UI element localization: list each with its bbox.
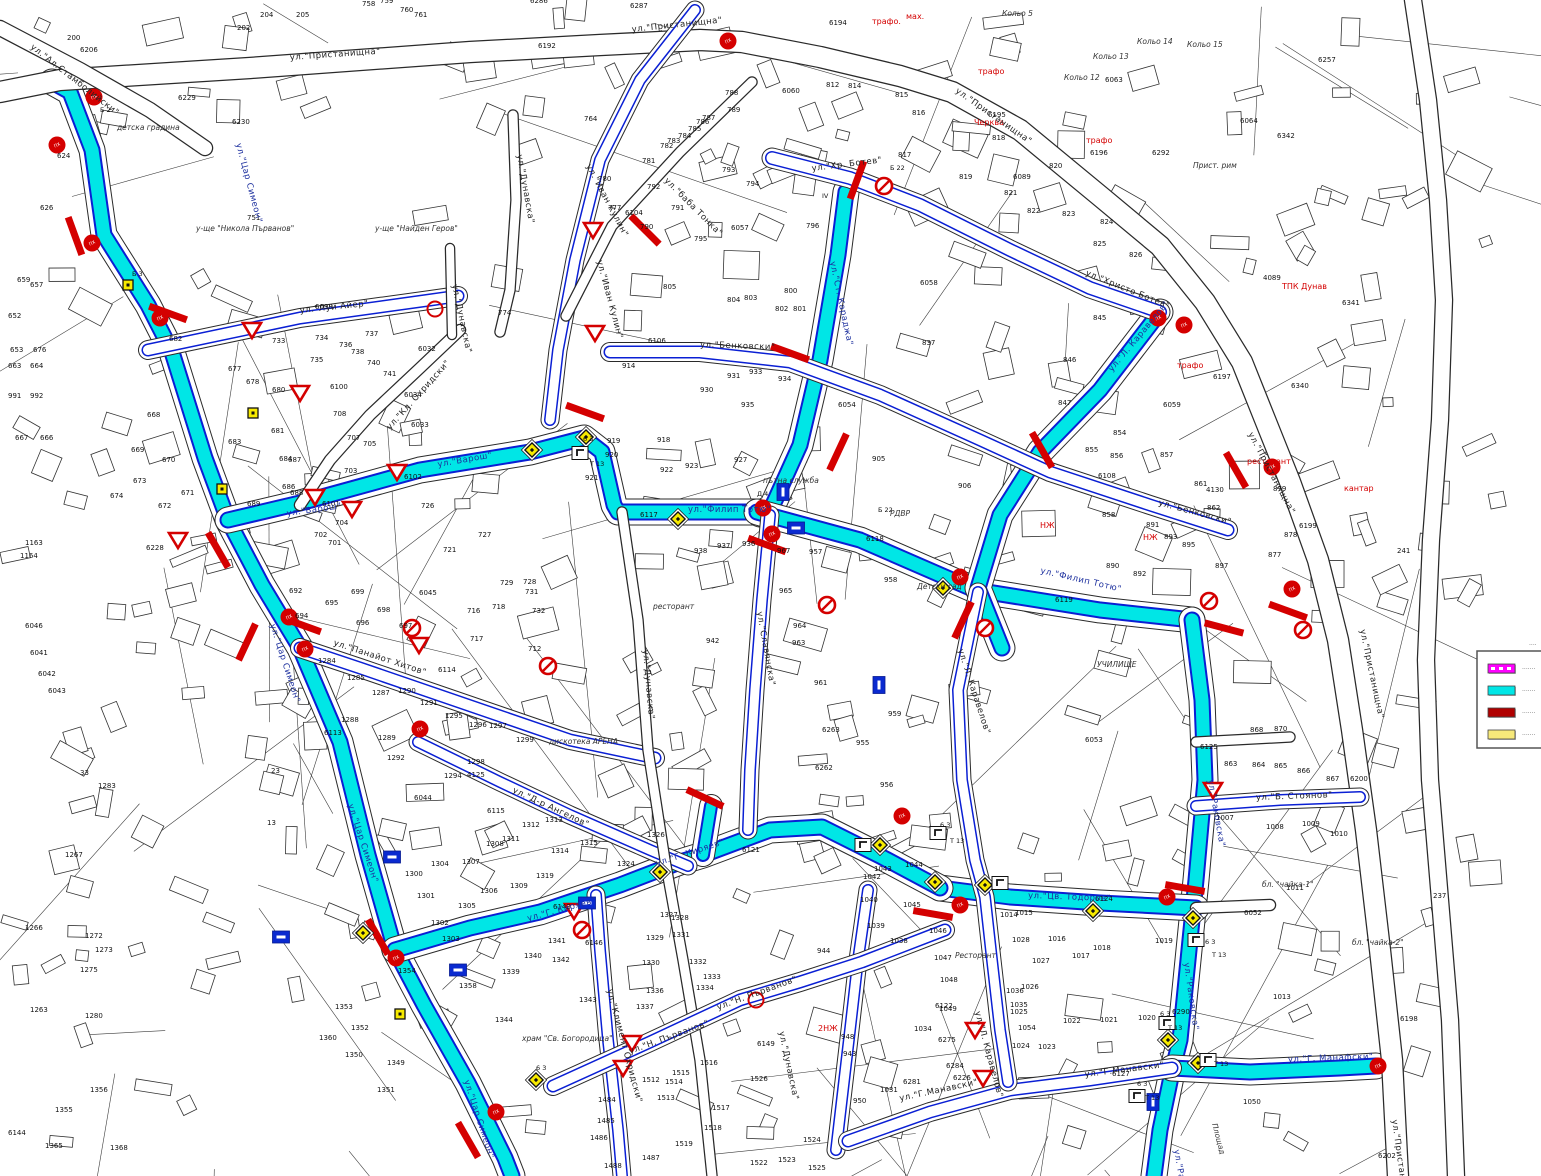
info-sign-icon bbox=[384, 851, 401, 863]
parcel-number: 965 bbox=[779, 587, 792, 595]
parcel-number: 1525 bbox=[808, 1164, 826, 1172]
parcel-number: 788 bbox=[725, 89, 738, 97]
parcel-number: 678 bbox=[246, 378, 259, 386]
parcel-number: 804 bbox=[727, 296, 741, 304]
parcel-number: 956 bbox=[880, 781, 894, 789]
parcel-number: 1292 bbox=[387, 754, 405, 762]
parcel-number: 1285 bbox=[347, 674, 365, 682]
parcel-number: 796 bbox=[806, 222, 820, 230]
parcel-number: 205 bbox=[296, 11, 309, 19]
building bbox=[697, 561, 728, 590]
parcel-number: 1039 bbox=[867, 922, 885, 930]
hydrant-icon: ПХ bbox=[84, 235, 101, 252]
hydrant-icon: ПХ bbox=[152, 310, 169, 327]
building bbox=[999, 213, 1019, 233]
parcel-number: 1329 bbox=[646, 934, 664, 942]
parcel-number: 782 bbox=[660, 142, 673, 150]
legend-item-label: ······· bbox=[1522, 710, 1535, 717]
building bbox=[846, 796, 864, 807]
parcel-number: 23 bbox=[271, 767, 280, 775]
parcel-number: 991 bbox=[8, 392, 21, 400]
annotation: Б 3 bbox=[132, 270, 143, 278]
parcel-number: 698 bbox=[377, 606, 390, 614]
poi-label: Кольо 15 bbox=[1187, 40, 1223, 49]
parcel-number: 958 bbox=[884, 576, 897, 584]
parcel-number: 1287 bbox=[372, 689, 390, 697]
parcel-number: 670 bbox=[162, 456, 175, 464]
parcel-number: 1519 bbox=[675, 1140, 693, 1148]
parcel-number: 4089 bbox=[1263, 274, 1281, 282]
annotation: 6 3 bbox=[1160, 1010, 1170, 1018]
parcel-number: 6262 bbox=[815, 764, 833, 772]
parcel-number: 702 bbox=[314, 531, 327, 539]
parcel-number: 822 bbox=[1027, 207, 1040, 215]
parcel-number: 6104 bbox=[625, 209, 643, 217]
parcel-number: 1307 bbox=[462, 858, 480, 866]
parcel-number: 1010 bbox=[1330, 830, 1348, 838]
parcel-number: 6206 bbox=[80, 46, 98, 54]
parcel-number: 1040 bbox=[860, 896, 878, 904]
parcel-number: 1328 bbox=[671, 914, 689, 922]
parcel-number: 626 bbox=[40, 204, 54, 212]
parcel-number: 760 bbox=[400, 6, 413, 14]
parcel-number: 938 bbox=[694, 547, 707, 555]
parcel-number: 687 bbox=[288, 456, 301, 464]
parcel-number: 6202 bbox=[1378, 1152, 1396, 1160]
parcel-number: 819 bbox=[959, 173, 972, 181]
parcel-number: 6108 bbox=[1098, 472, 1116, 480]
parcel-number: 695 bbox=[325, 599, 338, 607]
building bbox=[693, 668, 715, 689]
annotation: 6 3 bbox=[1205, 938, 1215, 946]
parcel-number: 890 bbox=[1106, 562, 1119, 570]
parcel-number: 6041 bbox=[30, 649, 48, 657]
parcel-number: 6045 bbox=[419, 589, 437, 597]
parcel-number: 1365 bbox=[45, 1142, 63, 1150]
annotation: IV bbox=[822, 192, 829, 200]
building bbox=[635, 554, 663, 569]
parcel-number: 6106 bbox=[648, 337, 666, 345]
parcel-number: 1288 bbox=[341, 716, 359, 724]
no-stopping-icon bbox=[540, 658, 556, 674]
street-label: ул."Филип Тотю" bbox=[688, 505, 771, 515]
parcel-number: 959 bbox=[888, 710, 901, 718]
building bbox=[136, 642, 156, 654]
building bbox=[1383, 398, 1393, 407]
parcel-number: 825 bbox=[1093, 240, 1106, 248]
hydrant-icon: ПХ bbox=[894, 808, 911, 825]
parcel-number: 1034 bbox=[914, 1025, 932, 1033]
parcel-number: 784 bbox=[678, 132, 692, 140]
parcel-number: 718 bbox=[492, 603, 505, 611]
building bbox=[747, 1126, 774, 1139]
building bbox=[455, 499, 470, 509]
parcel-number: 1486 bbox=[590, 1134, 608, 1142]
parcel-number: 6118 bbox=[866, 535, 884, 543]
parcel-number: 1027 bbox=[1032, 957, 1050, 965]
hydrant-icon: ПХ bbox=[49, 137, 66, 154]
parcel-number: 1523 bbox=[778, 1156, 796, 1164]
parcel-number: 6125 bbox=[1200, 743, 1218, 751]
parcel-number: 857 bbox=[1160, 451, 1173, 459]
parcel-number: 895 bbox=[1182, 541, 1195, 549]
parcel-number: 1016 bbox=[1048, 935, 1066, 943]
parcel-number: 1518 bbox=[704, 1124, 722, 1132]
parcel-number: 937 bbox=[717, 542, 730, 550]
parcel-number: 1018 bbox=[1093, 944, 1111, 952]
parcel-number: 1275 bbox=[80, 966, 98, 974]
parcel-number: 1020 bbox=[1138, 1014, 1156, 1022]
building bbox=[285, 826, 297, 854]
parcel-number: 761 bbox=[414, 11, 427, 19]
parcel-number: 1045 bbox=[903, 901, 921, 909]
street-plain bbox=[1196, 737, 1290, 742]
parcel-number: 817 bbox=[898, 151, 911, 159]
parcel-number: 1054 bbox=[1018, 1024, 1036, 1032]
parcel-number: 6043 bbox=[48, 687, 66, 695]
parcel-number: 6286 bbox=[530, 0, 548, 5]
annotation: Т 13 bbox=[1213, 1060, 1228, 1068]
parcel-number: 1050 bbox=[1243, 1098, 1261, 1106]
parcel-number: 866 bbox=[1297, 767, 1311, 775]
parcel-number: 1023 bbox=[1038, 1043, 1056, 1051]
parcel-number: 738 bbox=[351, 348, 364, 356]
parcel-number: 200 bbox=[67, 34, 80, 42]
parcel-number: 729 bbox=[500, 579, 513, 587]
hydrant-box-icon bbox=[1188, 934, 1204, 947]
parcel-number: 1025 bbox=[1010, 1008, 1028, 1016]
parcel-number: 1298 bbox=[467, 758, 485, 766]
parcel-number: 6197 bbox=[1213, 373, 1231, 381]
parcel-number: 1344 bbox=[495, 1016, 513, 1024]
parcel-number: 6060 bbox=[782, 87, 800, 95]
building bbox=[1152, 568, 1191, 595]
parcel-number: 696 bbox=[356, 619, 370, 627]
parcel-number: 1341 bbox=[548, 937, 566, 945]
parcel-number: 1517 bbox=[712, 1104, 730, 1112]
parcel-number: 6113 bbox=[324, 729, 342, 737]
parcel-number: 1350 bbox=[345, 1051, 363, 1059]
parcel-number: 1289 bbox=[378, 734, 396, 742]
parcel-number: 950 bbox=[853, 1097, 866, 1105]
parcel-number: 764 bbox=[584, 115, 598, 123]
building bbox=[107, 603, 126, 620]
poi-label: Детски сад bbox=[916, 582, 962, 591]
parcel-number: 854 bbox=[1113, 429, 1127, 437]
parcel-number: 846 bbox=[1063, 356, 1077, 364]
building bbox=[1488, 491, 1506, 509]
parcel-number: 801 bbox=[793, 305, 806, 313]
parcel-number: 1343 bbox=[579, 996, 597, 1004]
no-stopping-icon bbox=[819, 597, 835, 613]
poi-label: Ресторант bbox=[955, 951, 996, 960]
parcel-number: 737 bbox=[365, 330, 378, 338]
parcel-number: 1049 bbox=[939, 1005, 957, 1013]
parcel-number: 728 bbox=[523, 578, 536, 586]
red-label: трафо bbox=[1177, 361, 1203, 370]
parcel-number: 1024 bbox=[1012, 1042, 1030, 1050]
valve-square-icon bbox=[123, 280, 133, 290]
parcel-number: 726 bbox=[421, 502, 435, 510]
parcel-number: 707 bbox=[347, 434, 360, 442]
parcel-number: 699 bbox=[351, 588, 364, 596]
poi-label: у-ще "Найден Геров" bbox=[374, 224, 458, 233]
parcel-number: 863 bbox=[1224, 760, 1237, 768]
parcel-number: 1266 bbox=[25, 924, 43, 932]
parcel-number: 704 bbox=[335, 519, 349, 527]
parcel-number: 657 bbox=[30, 281, 43, 289]
red-label: трафо. bbox=[872, 17, 901, 26]
red-label: ТПК Дунав bbox=[1281, 282, 1327, 291]
parcel-number: 1284 bbox=[318, 657, 336, 665]
no-stopping-icon bbox=[1201, 593, 1217, 609]
parcel-number: 1028 bbox=[1012, 936, 1030, 944]
parcel-number: 6117 bbox=[640, 511, 658, 519]
building bbox=[983, 348, 1014, 380]
no-stopping-icon bbox=[876, 178, 892, 194]
parcel-number: 6228 bbox=[146, 544, 164, 552]
parcel-number: 6032 bbox=[418, 345, 436, 353]
parcel-number: 712 bbox=[528, 645, 541, 653]
parcel-number: 6059 bbox=[1163, 401, 1181, 409]
parcel-number: 1304 bbox=[431, 860, 449, 868]
parcel-number: 868 bbox=[1250, 726, 1263, 734]
annotation: Т 13 bbox=[1211, 951, 1226, 959]
parcel-number: 6290 bbox=[1172, 1008, 1190, 1016]
parcel-number: 1515 bbox=[672, 1069, 690, 1077]
parcel-number: 652 bbox=[8, 312, 21, 320]
parcel-number: 1272 bbox=[85, 932, 103, 940]
poi-label: РДВР bbox=[890, 509, 911, 518]
building bbox=[1321, 931, 1339, 951]
hydrant-icon: ПХ bbox=[297, 641, 314, 658]
parcel-number: 927 bbox=[734, 456, 747, 464]
parcel-number: 6102 bbox=[404, 473, 422, 481]
parcel-number: 1302 bbox=[431, 919, 449, 927]
parcel-number: 6089 bbox=[1013, 173, 1031, 181]
building bbox=[75, 950, 89, 962]
parcel-number: 905 bbox=[872, 455, 885, 463]
parcel-number: 1043 bbox=[874, 865, 892, 873]
parcel-number: 6144 bbox=[8, 1129, 26, 1137]
parcel-number: 694 bbox=[295, 612, 309, 620]
parcel-number: 4125 bbox=[467, 771, 485, 779]
parcel-number: 1047 bbox=[934, 954, 952, 962]
poi-label: ресторант bbox=[652, 602, 695, 611]
poi-label: у-ще "Никола Първанов" bbox=[195, 224, 294, 233]
parcel-number: 6115 bbox=[487, 807, 505, 815]
parcel-number: 6229 bbox=[178, 94, 196, 102]
parcel-number: 847 bbox=[1058, 399, 1071, 407]
parcel-number: 6053 bbox=[1085, 736, 1103, 744]
parcel-number: 802 bbox=[775, 305, 788, 313]
parcel-number: 6149 bbox=[757, 1040, 775, 1048]
parcel-number: 6230 bbox=[232, 118, 250, 126]
parcel-number: 789 bbox=[727, 106, 740, 114]
building bbox=[646, 448, 681, 460]
parcel-number: 716 bbox=[467, 607, 481, 615]
parcel-number: 6042 bbox=[38, 670, 56, 678]
parcel-number: 1356 bbox=[90, 1086, 108, 1094]
parcel-number: 1267 bbox=[65, 851, 83, 859]
info-sign-icon bbox=[788, 522, 805, 534]
parcel-number: 13 bbox=[267, 819, 276, 827]
parcel-number: 1008 bbox=[1266, 823, 1284, 831]
parcel-number: 6046 bbox=[25, 622, 43, 630]
building bbox=[1211, 236, 1250, 250]
building bbox=[1263, 1113, 1280, 1129]
parcel-number: 814 bbox=[848, 82, 862, 90]
parcel-number: 1334 bbox=[696, 984, 714, 992]
parcel-number: 727 bbox=[478, 531, 491, 539]
parcel-number: 943 bbox=[843, 1050, 856, 1058]
parcel-number: 1340 bbox=[524, 952, 542, 960]
parcel-number: 664 bbox=[30, 362, 44, 370]
hydrant-icon: ПХ bbox=[1284, 581, 1301, 598]
parcel-number: 934 bbox=[778, 375, 792, 383]
parcel-number: 906 bbox=[958, 482, 972, 490]
parcel-number: 816 bbox=[912, 109, 926, 117]
building bbox=[525, 1120, 546, 1135]
poi-label: детска градина bbox=[116, 123, 180, 132]
parcel-number: 1048 bbox=[940, 976, 958, 984]
parcel-number: 673 bbox=[133, 477, 146, 485]
parcel-number: 6341 bbox=[1342, 299, 1360, 307]
building bbox=[1341, 18, 1360, 47]
parcel-number: 6058 bbox=[920, 279, 938, 287]
parcel-number: 1015 bbox=[1015, 909, 1033, 917]
parcel-number: 791 bbox=[671, 204, 684, 212]
parcel-number: 6064 bbox=[1240, 117, 1258, 125]
parcel-number: 897 bbox=[1215, 562, 1228, 570]
parcel-number: 1354 bbox=[398, 967, 416, 975]
annotation: Т 13 bbox=[1144, 1094, 1159, 1102]
building bbox=[1045, 873, 1062, 881]
parcel-number: 6100 bbox=[330, 383, 348, 391]
parcel-number: 6275 bbox=[938, 1036, 956, 1044]
city-map[interactable]: ПХПХПХПХПХПХПХПХПХПХПХПХПХПХПХПХПХПХПХПХ… bbox=[0, 0, 1541, 1176]
parcel-number: 1017 bbox=[1072, 952, 1090, 960]
building bbox=[668, 768, 704, 790]
parcel-number: 1514 bbox=[665, 1078, 683, 1086]
parcel-number: 1351 bbox=[377, 1086, 395, 1094]
parcel-number: 1031 bbox=[880, 1086, 898, 1094]
parcel-number: 818 bbox=[992, 134, 1005, 142]
parcel-number: 624 bbox=[57, 152, 71, 160]
no-stopping-icon bbox=[977, 620, 993, 636]
parcel-number: 1009 bbox=[1302, 820, 1320, 828]
building bbox=[49, 268, 75, 282]
parcel-number: 1333 bbox=[703, 973, 721, 981]
building bbox=[627, 964, 653, 990]
parcel-number: 1355 bbox=[55, 1106, 73, 1114]
legend-chip bbox=[1488, 708, 1515, 717]
legend-item-label: ······· bbox=[1522, 688, 1535, 695]
parcel-number: 237 bbox=[1433, 892, 1446, 900]
parcel-number: 790 bbox=[640, 223, 653, 231]
parcel-number: 697 bbox=[399, 622, 412, 630]
parcel-number: 6057 bbox=[731, 224, 749, 232]
map-canvas[interactable]: ПХПХПХПХПХПХПХПХПХПХПХПХПХПХПХПХПХПХПХПХ… bbox=[0, 0, 1541, 1176]
parcel-number: 1337 bbox=[636, 1003, 654, 1011]
red-label: мах. bbox=[906, 12, 924, 21]
parcel-number: 803 bbox=[744, 294, 757, 302]
parcel-number: 1296 bbox=[469, 721, 487, 729]
parcel-number: 204 bbox=[260, 11, 274, 19]
building bbox=[1468, 860, 1502, 886]
red-label: НЖ bbox=[1040, 521, 1055, 530]
parcel-number: 705 bbox=[363, 440, 376, 448]
parcel-number: 1291 bbox=[420, 699, 438, 707]
parcel-number: 794 bbox=[746, 180, 760, 188]
parcel-number: 1301 bbox=[417, 892, 435, 900]
parcel-number: 6114 bbox=[438, 666, 456, 674]
legend-chip bbox=[1488, 686, 1515, 695]
parcel-number: 787 bbox=[702, 114, 715, 122]
annotation: 6 3 bbox=[536, 1064, 546, 1072]
building bbox=[630, 273, 663, 297]
hydrant-box-icon bbox=[572, 447, 588, 460]
parcel-number: 6052 bbox=[1244, 909, 1262, 917]
annotation: Т 13 bbox=[1167, 1024, 1182, 1032]
parcel-number: 1303 bbox=[442, 935, 460, 943]
legend-chip-dash bbox=[1499, 667, 1503, 670]
parcel-number: 1306 bbox=[480, 887, 498, 895]
parcel-number: 920 bbox=[605, 451, 618, 459]
parcel-number: 864 bbox=[1252, 761, 1266, 769]
hydrant-icon: ПХ bbox=[1176, 317, 1193, 334]
parcel-number: 241 bbox=[1397, 547, 1410, 555]
parcel-number: 676 bbox=[33, 346, 47, 354]
parcel-number: 795 bbox=[694, 235, 707, 243]
parcel-number: 1330 bbox=[642, 959, 660, 967]
building bbox=[472, 473, 500, 494]
parcel-number: 701 bbox=[328, 539, 341, 547]
annotation: 6 3 bbox=[583, 435, 593, 443]
parcel-number: 666 bbox=[40, 434, 54, 442]
parcel-number: 845 bbox=[1093, 314, 1106, 322]
parcel-number: 758 bbox=[362, 0, 375, 8]
building bbox=[670, 732, 684, 750]
parcel-number: 674 bbox=[110, 492, 124, 500]
parcel-number: 1312 bbox=[522, 821, 540, 829]
parcel-number: 931 bbox=[727, 372, 740, 380]
legend: ································ bbox=[1477, 642, 1541, 748]
annotation: Д 4 bbox=[757, 490, 768, 498]
parcel-number: 1484 bbox=[598, 1096, 616, 1104]
parcel-number: 6292 bbox=[1152, 149, 1170, 157]
building bbox=[565, 0, 587, 21]
parcel-number: 692 bbox=[289, 587, 302, 595]
building bbox=[624, 310, 642, 331]
parcel-number: 1022 bbox=[1063, 1017, 1081, 1025]
parcel-number: 1164 bbox=[20, 552, 38, 560]
parcel-number: 1324 bbox=[617, 860, 635, 868]
parcel-number: 936 bbox=[742, 540, 756, 548]
parcel-number: 918 bbox=[657, 436, 670, 444]
parcel-number: 858 bbox=[1102, 511, 1115, 519]
red-label: трафо bbox=[1086, 136, 1112, 145]
red-label: НЖ bbox=[1143, 533, 1158, 542]
parcel-number: 6194 bbox=[829, 19, 847, 27]
parcel-number: 1019 bbox=[1155, 937, 1173, 945]
parcel-number: 837 bbox=[922, 339, 935, 347]
parcel-number: 6340 bbox=[1291, 382, 1309, 390]
parcel-number: 856 bbox=[1110, 452, 1124, 460]
parcel-number: 933 bbox=[749, 368, 762, 376]
parcel-number: 6342 bbox=[1277, 132, 1295, 140]
parcel-number: 1319 bbox=[536, 872, 554, 880]
